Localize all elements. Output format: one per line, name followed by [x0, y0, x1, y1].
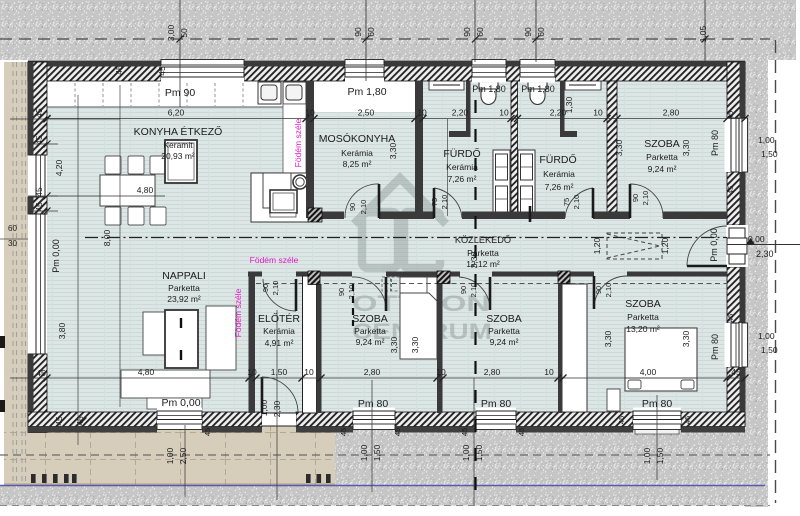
svg-text:Födém széle: Födém széle [233, 288, 243, 337]
svg-text:8,25 m²: 8,25 m² [343, 159, 372, 169]
svg-text:45: 45 [36, 368, 46, 378]
svg-text:4,80: 4,80 [137, 185, 154, 195]
svg-text:3,00: 3,00 [166, 24, 176, 41]
svg-text:2,10: 2,10 [641, 191, 650, 206]
svg-text:60: 60 [475, 27, 485, 37]
svg-text:Pm 80: Pm 80 [481, 398, 512, 410]
svg-text:45: 45 [203, 428, 212, 436]
svg-text:NAPPALI: NAPPALI [162, 270, 206, 282]
svg-text:3,30: 3,30 [410, 336, 420, 353]
svg-text:45: 45 [731, 367, 741, 377]
svg-text:45: 45 [34, 202, 44, 212]
svg-text:10: 10 [304, 367, 314, 377]
svg-text:2,80: 2,80 [663, 108, 680, 118]
svg-text:10: 10 [305, 108, 315, 118]
svg-text:2,10: 2,10 [359, 200, 368, 215]
svg-text:2,10: 2,10 [604, 283, 613, 298]
svg-text:1,20: 1,20 [660, 237, 670, 254]
svg-text:Pm 1,80: Pm 1,80 [521, 84, 555, 94]
svg-text:45: 45 [460, 428, 469, 436]
svg-text:1,00: 1,00 [165, 447, 175, 464]
svg-text:3,30: 3,30 [469, 251, 479, 268]
svg-text:9,24 m²: 9,24 m² [356, 337, 385, 347]
svg-text:SZOBA: SZOBA [644, 138, 680, 150]
svg-text:1,05: 1,05 [698, 25, 708, 42]
svg-text:90: 90 [459, 286, 468, 294]
svg-text:23,92 m²: 23,92 m² [167, 294, 201, 304]
svg-text:10: 10 [544, 367, 554, 377]
svg-text:45: 45 [726, 111, 735, 119]
svg-text:4,00: 4,00 [640, 367, 657, 377]
svg-text:2,50: 2,50 [358, 108, 375, 118]
svg-text:90: 90 [631, 194, 640, 202]
svg-text:60: 60 [536, 27, 546, 37]
svg-text:Födém széle: Födém széle [250, 255, 299, 265]
svg-text:3,30: 3,30 [389, 336, 399, 353]
svg-text:Parketta: Parketta [354, 326, 386, 336]
svg-text:Keramit: Keramit [163, 140, 193, 150]
svg-text:2,10: 2,10 [440, 195, 449, 210]
svg-text:0,00: 0,00 [748, 234, 765, 244]
svg-text:3,30: 3,30 [603, 330, 613, 347]
svg-text:1,20: 1,20 [592, 237, 602, 254]
svg-text:3,30: 3,30 [614, 139, 624, 156]
svg-text:2,30: 2,30 [756, 249, 774, 259]
svg-text:10: 10 [499, 108, 509, 118]
svg-text:Pm 0,00: Pm 0,00 [709, 228, 719, 262]
svg-text:45: 45 [393, 428, 402, 436]
svg-text:1,00: 1,00 [259, 399, 269, 416]
svg-text:2,10: 2,10 [572, 195, 581, 210]
svg-text:1,00: 1,00 [461, 444, 471, 461]
svg-text:Pm 80: Pm 80 [710, 334, 720, 360]
svg-text:Kerámia: Kerámia [263, 326, 295, 336]
svg-text:45: 45 [517, 428, 526, 436]
svg-text:1,00: 1,00 [758, 135, 775, 145]
svg-text:45: 45 [726, 314, 735, 322]
svg-text:Pm 0,00: Pm 0,00 [161, 397, 200, 409]
svg-text:1,00: 1,00 [642, 447, 652, 464]
svg-text:Pm 90: Pm 90 [165, 87, 196, 99]
svg-text:Pm 80: Pm 80 [642, 398, 673, 410]
svg-text:6,20: 6,20 [168, 108, 185, 118]
svg-text:3,30: 3,30 [681, 139, 691, 156]
svg-text:90: 90 [348, 203, 357, 211]
svg-text:75: 75 [562, 198, 571, 206]
svg-text:7,26 m²: 7,26 m² [545, 182, 574, 192]
svg-text:2,10: 2,10 [469, 283, 478, 298]
svg-text:Parketta: Parketta [627, 312, 659, 322]
svg-text:1,00: 1,00 [359, 444, 369, 461]
svg-text:KÖZLEKEDŐ: KÖZLEKEDŐ [455, 235, 511, 245]
svg-text:4,80: 4,80 [138, 367, 155, 377]
svg-text:Parketta: Parketta [168, 283, 200, 293]
svg-text:Parketta: Parketta [646, 152, 678, 162]
svg-text:9,24 m²: 9,24 m² [648, 164, 677, 174]
svg-text:Kerámia: Kerámia [446, 162, 478, 172]
svg-text:3,30: 3,30 [388, 142, 398, 159]
svg-text:30: 30 [8, 239, 17, 248]
svg-text:1,50: 1,50 [761, 149, 778, 159]
svg-text:1,50: 1,50 [761, 345, 778, 355]
svg-text:Pm 80: Pm 80 [710, 130, 720, 156]
svg-text:Kerámia: Kerámia [341, 148, 373, 158]
svg-text:1,50: 1,50 [655, 447, 665, 464]
svg-text:60: 60 [366, 27, 376, 37]
svg-text:20,93 m²: 20,93 m² [161, 151, 195, 161]
svg-text:7,26 m²: 7,26 m² [448, 174, 477, 184]
svg-text:45: 45 [34, 135, 44, 145]
svg-text:SZOBA: SZOBA [625, 298, 661, 310]
svg-text:2,30: 2,30 [272, 400, 282, 417]
svg-text:2,20: 2,20 [452, 108, 469, 118]
svg-text:45: 45 [683, 416, 692, 424]
svg-text:45: 45 [617, 416, 626, 424]
svg-text:2,10: 2,10 [271, 281, 280, 296]
svg-text:1,50: 1,50 [372, 444, 382, 461]
svg-text:2,50: 2,50 [178, 447, 188, 464]
svg-text:Parketta: Parketta [488, 326, 520, 336]
svg-text:KONYHA ÉTKEZŐ: KONYHA ÉTKEZŐ [134, 124, 223, 138]
svg-text:SZOBA: SZOBA [352, 313, 388, 325]
svg-text:FÜRDŐ: FÜRDŐ [539, 152, 576, 166]
svg-text:4,20: 4,20 [54, 159, 64, 176]
svg-text:8,00: 8,00 [102, 229, 112, 246]
svg-text:45: 45 [339, 428, 348, 436]
svg-text:50: 50 [179, 28, 189, 38]
svg-text:45: 45 [114, 65, 124, 75]
svg-text:2,10: 2,10 [347, 285, 356, 300]
svg-text:13,20 m²: 13,20 m² [626, 324, 660, 334]
svg-text:4,91 m²: 4,91 m² [265, 338, 294, 348]
svg-text:10: 10 [436, 367, 446, 377]
svg-text:45: 45 [34, 108, 44, 118]
svg-text:1,50: 1,50 [271, 367, 288, 377]
svg-text:90: 90 [353, 27, 363, 37]
svg-text:1,30: 1,30 [564, 96, 574, 113]
svg-text:10: 10 [593, 108, 603, 118]
svg-text:Pm 80: Pm 80 [358, 398, 389, 410]
svg-text:MOSÓKONYHA: MOSÓKONYHA [319, 132, 395, 145]
svg-text:SZOBA: SZOBA [486, 313, 522, 325]
svg-text:2,80: 2,80 [484, 367, 501, 377]
svg-text:Pm 0,00: Pm 0,00 [51, 239, 61, 273]
svg-text:90: 90 [337, 288, 346, 296]
svg-text:45: 45 [34, 187, 44, 197]
svg-text:90: 90 [462, 27, 472, 37]
svg-text:45: 45 [157, 66, 167, 76]
svg-text:FÜRDŐ: FÜRDŐ [443, 146, 480, 160]
svg-text:45: 45 [726, 186, 735, 194]
svg-text:10: 10 [247, 367, 257, 377]
svg-text:90: 90 [523, 27, 533, 37]
svg-text:Kerámia: Kerámia [543, 169, 575, 179]
svg-text:1,00: 1,00 [758, 331, 775, 341]
svg-text:Födém széle: Födém széle [293, 118, 303, 167]
svg-text:75: 75 [430, 198, 439, 206]
svg-text:Pm 1,80: Pm 1,80 [472, 84, 506, 94]
svg-text:1,50: 1,50 [474, 444, 484, 461]
svg-text:10: 10 [417, 108, 427, 118]
svg-text:90: 90 [261, 284, 270, 292]
svg-text:3,80: 3,80 [57, 322, 67, 339]
svg-text:9,24 m²: 9,24 m² [490, 337, 519, 347]
svg-text:Pm 1,80: Pm 1,80 [347, 86, 386, 98]
svg-text:2,80: 2,80 [364, 367, 381, 377]
svg-text:60: 60 [8, 224, 17, 233]
svg-text:90: 90 [594, 286, 603, 294]
svg-text:3,30: 3,30 [681, 330, 691, 347]
svg-text:ELŐTÉR: ELŐTÉR [258, 311, 300, 325]
